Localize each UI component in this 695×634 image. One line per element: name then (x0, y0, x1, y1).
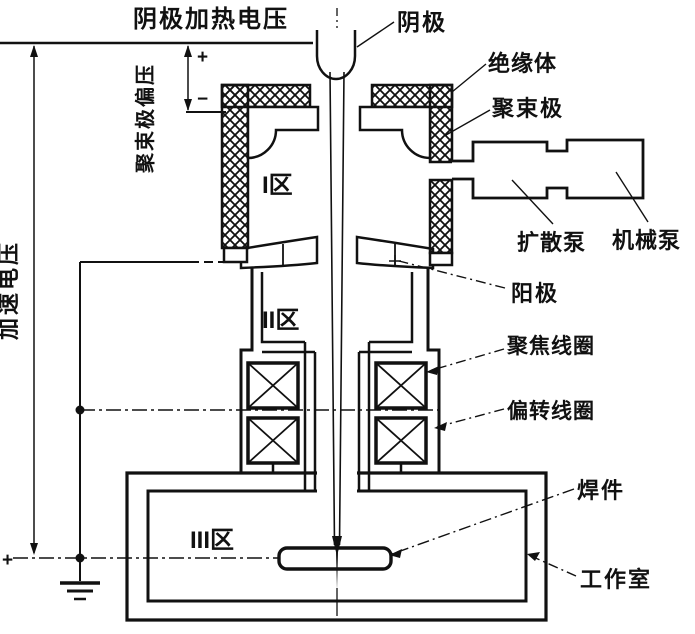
column-foot-right (430, 253, 452, 265)
label-anode: 阳极 (511, 281, 559, 306)
label-accelerating-voltage: 加速电压 (0, 240, 21, 341)
label-zone-2: II区 (262, 307, 299, 334)
label-cathode: 阴极 (397, 9, 447, 35)
gun-head (222, 85, 452, 265)
label-focusing-electrode-bias: 聚束极偏压 (133, 63, 157, 174)
label-zone-3: III区 (190, 527, 234, 554)
beam-envelope (330, 72, 344, 545)
dim-arrow-bias-bottom (184, 99, 192, 111)
anode-plate-left (241, 237, 317, 268)
junction-dot-coil (76, 406, 85, 415)
coils (248, 363, 426, 463)
label-bias-minus: − (197, 89, 208, 110)
label-zone-1: I区 (262, 172, 293, 199)
arrow-focusing-coil (426, 366, 439, 375)
insulator-side-right-lower (430, 180, 452, 253)
cathode-filament (317, 30, 355, 79)
dim-arrow-accel-bottom (30, 543, 38, 555)
label-insulator: 绝缘体 (488, 51, 557, 76)
ground-symbol (60, 558, 100, 599)
label-deflection-coil: 偏转线圈 (507, 399, 595, 423)
label-ground-plus: + (2, 550, 13, 571)
label-mechanical-pump: 机械泵 (612, 228, 681, 253)
focusing-electrode-left (248, 107, 318, 158)
insulator-side-left (222, 85, 248, 248)
leader-cathode (357, 22, 394, 47)
label-diffusion-pump: 扩散泵 (517, 230, 586, 255)
electron-beam-welder-diagram: 阴极加热电压 阴极 绝缘体 聚束极 聚束极偏压 加速电压 I区 II区 III区… (0, 0, 695, 634)
anode-plates (241, 237, 433, 268)
dim-arrow-bias-top (184, 45, 192, 57)
label-cathode-heating-voltage: 阴极加热电压 (133, 6, 289, 33)
label-bias-plus: + (197, 47, 208, 68)
label-focusing-electrode: 聚束极 (491, 96, 564, 121)
diagram-stage: 阴极加热电压 阴极 绝缘体 聚束极 聚束极偏压 加速电压 I区 II区 III区… (0, 0, 695, 634)
leader-work-chamber (531, 556, 576, 576)
label-weldment: 焊件 (577, 478, 625, 503)
leader-deflection-coil (437, 409, 504, 427)
weldment-bar (279, 548, 391, 569)
column-foot-left (224, 248, 247, 262)
label-work-chamber: 工作室 (580, 567, 652, 592)
leader-insulator (452, 64, 486, 92)
focusing-electrode-right (360, 107, 430, 158)
electron-beam (330, 72, 344, 616)
dim-arrow-accel-top (30, 45, 38, 57)
junctions-and-arrows (30, 45, 192, 563)
insulator-side-right-upper (430, 85, 452, 162)
pump-assembly-outline (452, 140, 643, 198)
label-focusing-coil: 聚焦线圈 (506, 334, 595, 358)
